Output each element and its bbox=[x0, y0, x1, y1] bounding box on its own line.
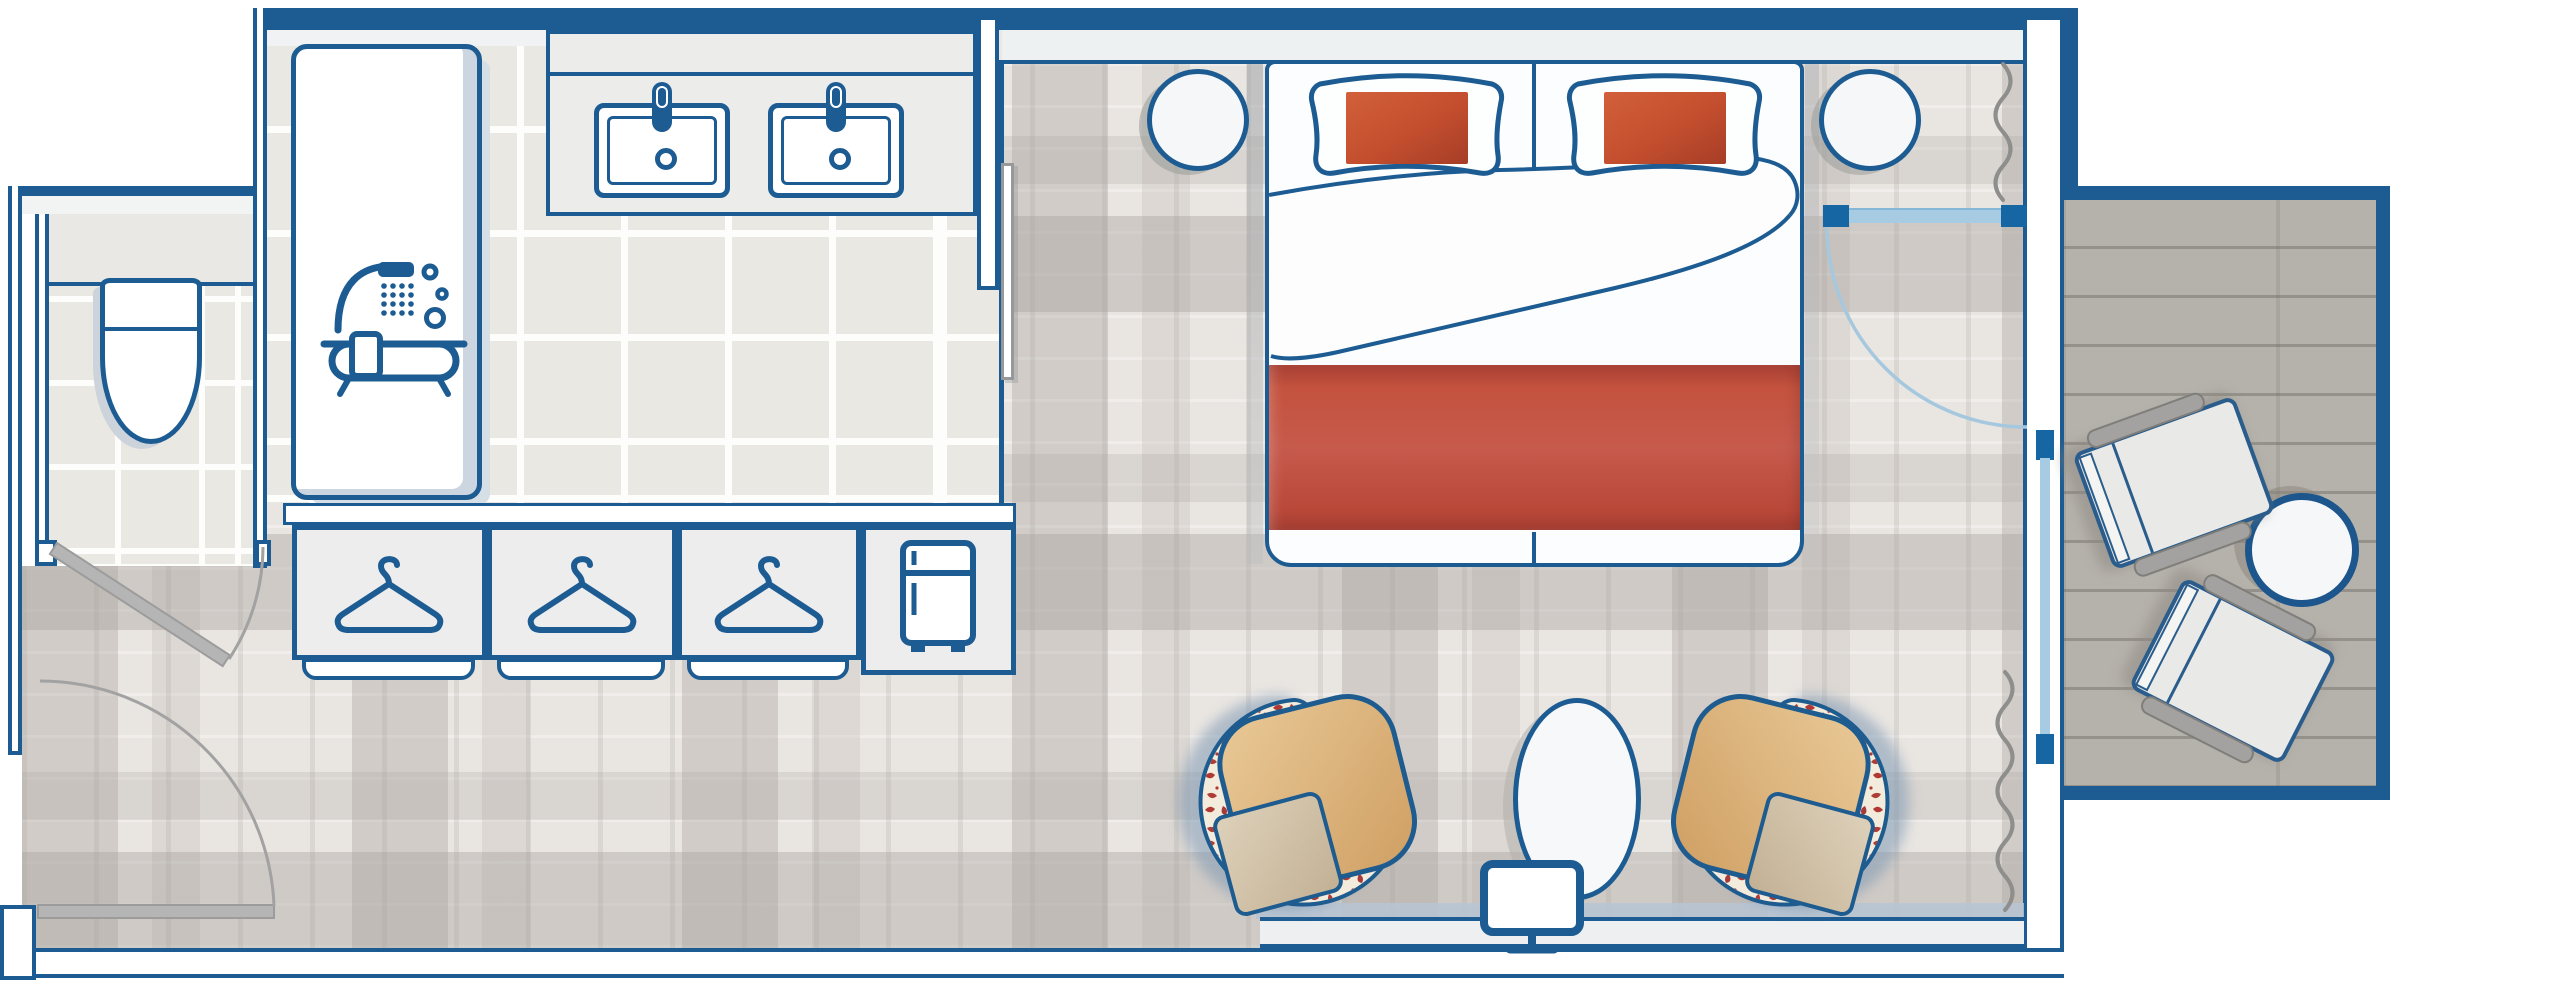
floor-plan bbox=[0, 0, 2560, 984]
entry-door bbox=[38, 681, 274, 918]
minibar-fridge-icon bbox=[903, 543, 973, 652]
balcony-door-swing-arc bbox=[1827, 227, 2027, 427]
curtain bbox=[1996, 64, 2013, 910]
wc-door bbox=[50, 543, 263, 666]
tv-icon bbox=[1484, 864, 1580, 949]
duvet bbox=[1269, 157, 1797, 358]
furniture-overlay bbox=[0, 0, 2560, 984]
bathtub-shower-icon bbox=[324, 262, 464, 394]
